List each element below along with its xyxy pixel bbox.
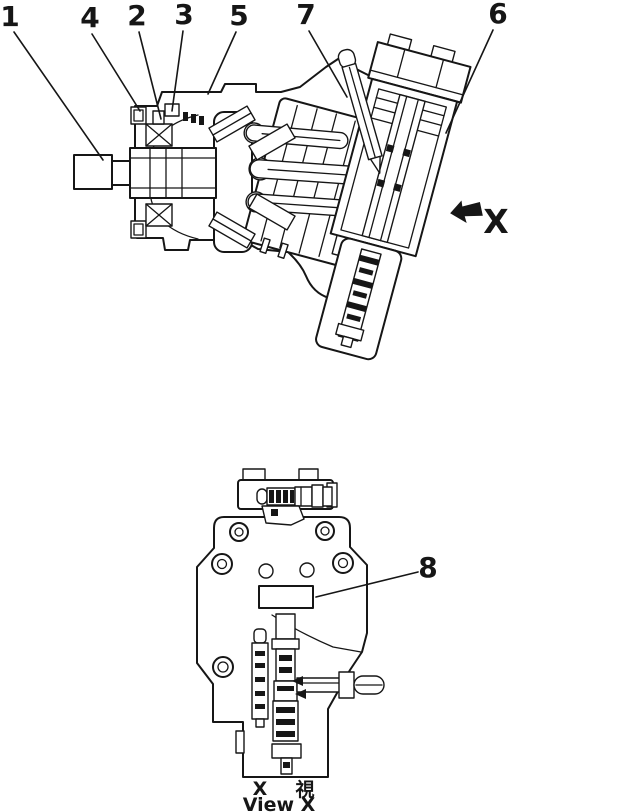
callout-8: 8	[418, 551, 437, 584]
view-x-drawing: 8 X 視 View X	[197, 469, 438, 812]
callout-5: 5	[229, 0, 248, 32]
direction-arrow-icon	[449, 198, 484, 225]
direction-label: X	[483, 202, 508, 241]
drive-shaft	[74, 148, 216, 198]
port-hole-right	[300, 563, 314, 577]
callout-6: 6	[488, 0, 507, 30]
callout-3: 3	[174, 0, 193, 31]
nameplate	[259, 586, 313, 608]
callout-4: 4	[80, 1, 99, 34]
relief-valve-left	[252, 629, 268, 727]
retainer-part	[153, 111, 164, 124]
view-caption-english: View X	[243, 794, 316, 812]
bottom-notch	[236, 731, 244, 753]
leader-line-4	[92, 34, 140, 111]
parts-diagram: X 1 2 3 4 5 6 7	[0, 0, 625, 812]
port-hole-left	[259, 564, 273, 578]
leader-line-1	[14, 32, 103, 160]
callout-1: 1	[0, 0, 19, 33]
motor-section-view: X	[74, 31, 509, 365]
callout-7: 7	[296, 0, 315, 31]
callout-2: 2	[127, 0, 146, 32]
